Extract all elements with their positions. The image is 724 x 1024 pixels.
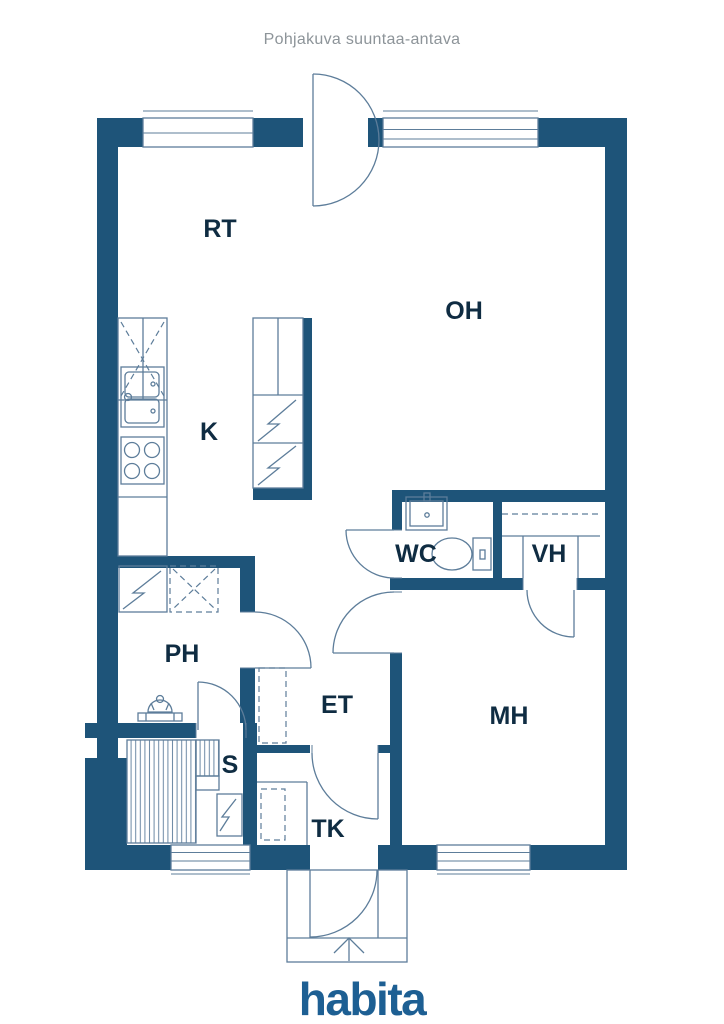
room-label-s: S (222, 751, 239, 779)
window-bottom-sauna (171, 845, 250, 874)
kitchen-counter (118, 318, 167, 556)
entrance-porch (287, 870, 407, 962)
room-label-et: ET (321, 691, 353, 719)
room-label-wc: WC (395, 540, 437, 568)
room-label-rt: RT (203, 215, 236, 243)
toilet-icon (432, 538, 491, 570)
wc-door (346, 530, 402, 578)
window-top-left (143, 111, 253, 147)
entrance-arrow-icon (334, 938, 364, 961)
sauna-door (196, 682, 246, 738)
sauna-benches (127, 740, 219, 843)
fridge-icon (258, 400, 296, 441)
sauna-heater-icon (217, 794, 242, 836)
tk-door (312, 745, 378, 819)
mh-door (333, 592, 402, 653)
shower-head-icon (138, 696, 182, 722)
window-bottom-bedroom (437, 845, 530, 874)
vh-door (523, 578, 577, 637)
room-label-vh: VH (532, 540, 567, 568)
floor-plan-drawing: RT OH K WC VH PH ET MH S TK (0, 0, 724, 1024)
room-label-tk: TK (311, 815, 344, 843)
entrance-door (310, 870, 377, 937)
room-labels: RT OH K WC VH PH ET MH S TK (165, 215, 567, 843)
room-label-k: K (200, 418, 218, 446)
room-label-oh: OH (445, 297, 483, 325)
stove (121, 437, 164, 484)
tk-closet (257, 782, 307, 845)
washing-machine-icon (119, 566, 167, 612)
kitchen-tall-cabinets (253, 318, 303, 488)
floor-plan-page: Pohjakuva suuntaa-antava (0, 0, 724, 1024)
habita-logo: habita (0, 972, 724, 1024)
window-top-right (383, 111, 538, 147)
ph-door (240, 612, 311, 668)
shower-area (170, 566, 218, 612)
freezer-icon (258, 446, 296, 485)
et-closet (259, 668, 286, 743)
room-label-ph: PH (165, 640, 200, 668)
room-label-mh: MH (490, 702, 529, 730)
